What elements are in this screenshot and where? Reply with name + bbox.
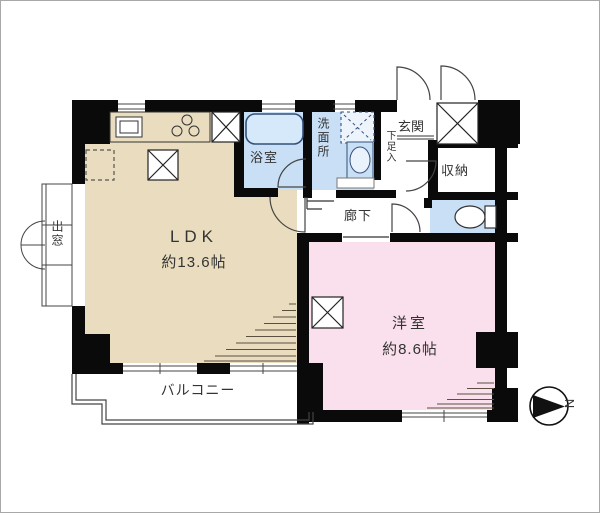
north-label: N — [562, 399, 577, 408]
wall-segment — [309, 410, 402, 422]
entrance-label: 玄関 — [398, 116, 432, 135]
western-room-label: 洋室 — [368, 312, 452, 333]
wall-segment — [297, 237, 309, 370]
wall-segment — [72, 363, 123, 374]
wall-segment — [297, 233, 342, 242]
bay-window-label: 出窓 — [49, 220, 66, 272]
wall-segment — [428, 140, 438, 200]
hallway-label: 廊下 — [344, 205, 386, 224]
entrance-step — [397, 136, 434, 139]
wall-segment — [295, 100, 335, 112]
wall-segment — [428, 140, 518, 148]
wall-segment — [297, 370, 309, 424]
entrance-door-right — [441, 66, 475, 100]
washroom-label: 洗面所 — [315, 117, 332, 185]
room-toilet — [430, 198, 495, 233]
wall-segment — [428, 192, 518, 200]
wall-segment — [390, 233, 518, 242]
shoe-cabinet-label: 下足入 — [382, 130, 397, 182]
wall-segment — [234, 188, 278, 197]
ldk-label: LDK — [148, 227, 240, 247]
wall-segment — [374, 112, 381, 180]
wall-segment — [197, 363, 230, 374]
wall-corner — [478, 100, 520, 144]
wall-segment — [145, 100, 262, 112]
western-room-size-label: 約8.6帖 — [358, 338, 462, 359]
wall-segment — [336, 190, 396, 198]
floor-plan: LDK 約13.6帖 洋室 約8.6帖 浴室 洗面所 下足入 玄関 収納 廊下 … — [0, 0, 600, 513]
wall-segment — [495, 368, 507, 422]
entrance-door-left — [397, 67, 430, 100]
ldk-size-label: 約13.6帖 — [136, 251, 252, 272]
toilet-door — [392, 204, 420, 232]
wall-segment — [303, 112, 312, 198]
wall-segment — [424, 198, 432, 208]
wall-segment — [72, 100, 85, 184]
storage-label: 収納 — [441, 160, 493, 179]
wall-corner — [476, 332, 518, 368]
wall-segment — [234, 112, 244, 196]
balcony-label: バルコニー — [148, 380, 248, 400]
bathroom-label: 浴室 — [250, 147, 302, 166]
wall-segment — [355, 100, 397, 112]
